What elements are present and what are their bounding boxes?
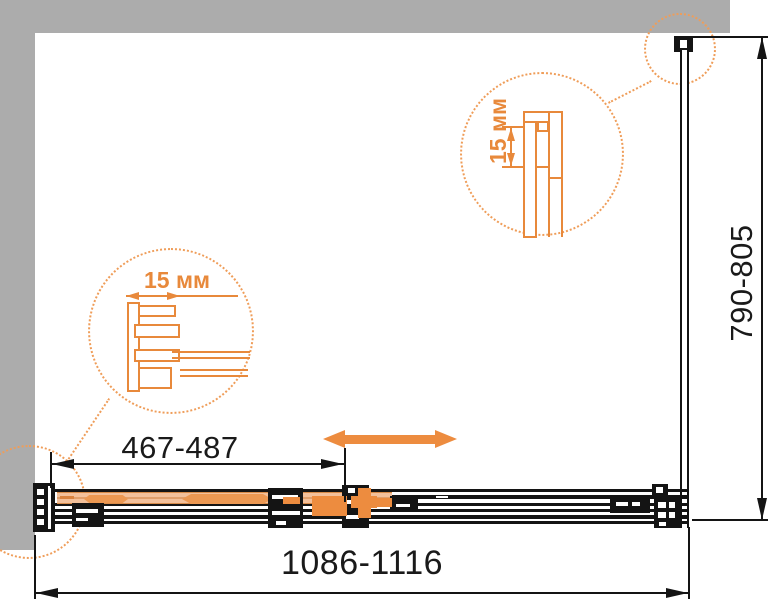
- dim-arrow-down-icon: [757, 498, 767, 520]
- door-panel-mark: [182, 494, 272, 504]
- end-block-hole: [669, 512, 675, 518]
- dim-text-depth: 790-805: [724, 218, 758, 348]
- dim-arrow-right-icon: [321, 459, 343, 469]
- rail-line: [55, 521, 688, 524]
- end-block-hole: [659, 522, 666, 526]
- rail-edge-line: [172, 351, 250, 353]
- rail-dash: [436, 496, 448, 498]
- slide-arrow-left-icon: [323, 430, 345, 448]
- profile-rung-outline: [138, 367, 172, 389]
- profile-clamp-outline: [548, 111, 563, 179]
- profile-hole: [37, 509, 44, 515]
- detail-left-label: 15 мм: [127, 267, 227, 294]
- roller-slot: [632, 502, 640, 506]
- slide-direction-arrow: [345, 435, 437, 444]
- profile-hole: [37, 489, 44, 495]
- roller-slot: [348, 488, 355, 493]
- end-bracket-hole: [656, 487, 663, 493]
- carriage-arm: [371, 498, 392, 507]
- end-block-hole: [669, 502, 675, 508]
- slide-arrow-right-icon: [435, 430, 457, 448]
- roller-slot: [616, 502, 628, 506]
- door-panel-mark: [84, 495, 128, 503]
- roller-slot: [76, 509, 98, 513]
- dim-arrow-left-icon: [36, 588, 58, 598]
- wall-profile-outline: [523, 111, 537, 238]
- dim-extension-line: [50, 452, 52, 488]
- profile-rung-outline: [134, 324, 180, 338]
- technical-drawing: 15 мм 15 мм: [0, 0, 770, 600]
- roller-slot: [396, 504, 410, 507]
- side-panel-profile: [680, 50, 689, 528]
- profile-rung-outline: [138, 305, 176, 317]
- dim-text-width: 1086-1116: [262, 544, 462, 583]
- carriage-body: [312, 496, 347, 516]
- roller-block: [72, 503, 104, 527]
- wall-bracket-hole: [680, 40, 687, 48]
- carriage-part: [283, 497, 300, 504]
- dim-extension-line: [688, 527, 690, 599]
- dim-arrow-up-icon: [757, 37, 767, 59]
- dim-arrow-right-icon: [666, 588, 688, 598]
- dim-text-door: 467-487: [100, 430, 260, 466]
- glass-edge-line: [561, 177, 563, 237]
- glass-edge-line: [548, 177, 550, 237]
- dim-line-depth: [761, 38, 763, 519]
- rail-edge-line: [172, 357, 250, 359]
- rail-edge-line: [180, 369, 248, 371]
- detail-left-dim-line: [126, 295, 238, 297]
- rail-line: [55, 509, 688, 512]
- end-block-hole: [658, 502, 666, 508]
- roller-slot: [76, 518, 88, 521]
- profile-hole: [37, 519, 44, 525]
- arrow-left-icon: [126, 292, 139, 300]
- dim-extension-line: [344, 448, 346, 502]
- arrow-up-icon: [507, 128, 515, 141]
- roller-slot: [272, 511, 300, 515]
- wall-top: [0, 0, 730, 33]
- profile-slot: [48, 486, 51, 529]
- door-panel-mark: [60, 496, 74, 499]
- roller-slot: [276, 521, 286, 525]
- dim-line-width: [35, 592, 689, 594]
- arrow-right-icon: [167, 292, 180, 300]
- rail-edge-line: [180, 375, 248, 377]
- magnifier-link-line-top: [608, 80, 652, 104]
- dim-arrow-left-icon: [52, 459, 74, 469]
- rail-line: [55, 515, 688, 519]
- profile-notch-outline: [537, 121, 549, 132]
- end-block-hole: [658, 512, 666, 518]
- arrow-down-icon: [507, 153, 515, 166]
- profile-hole: [37, 499, 44, 505]
